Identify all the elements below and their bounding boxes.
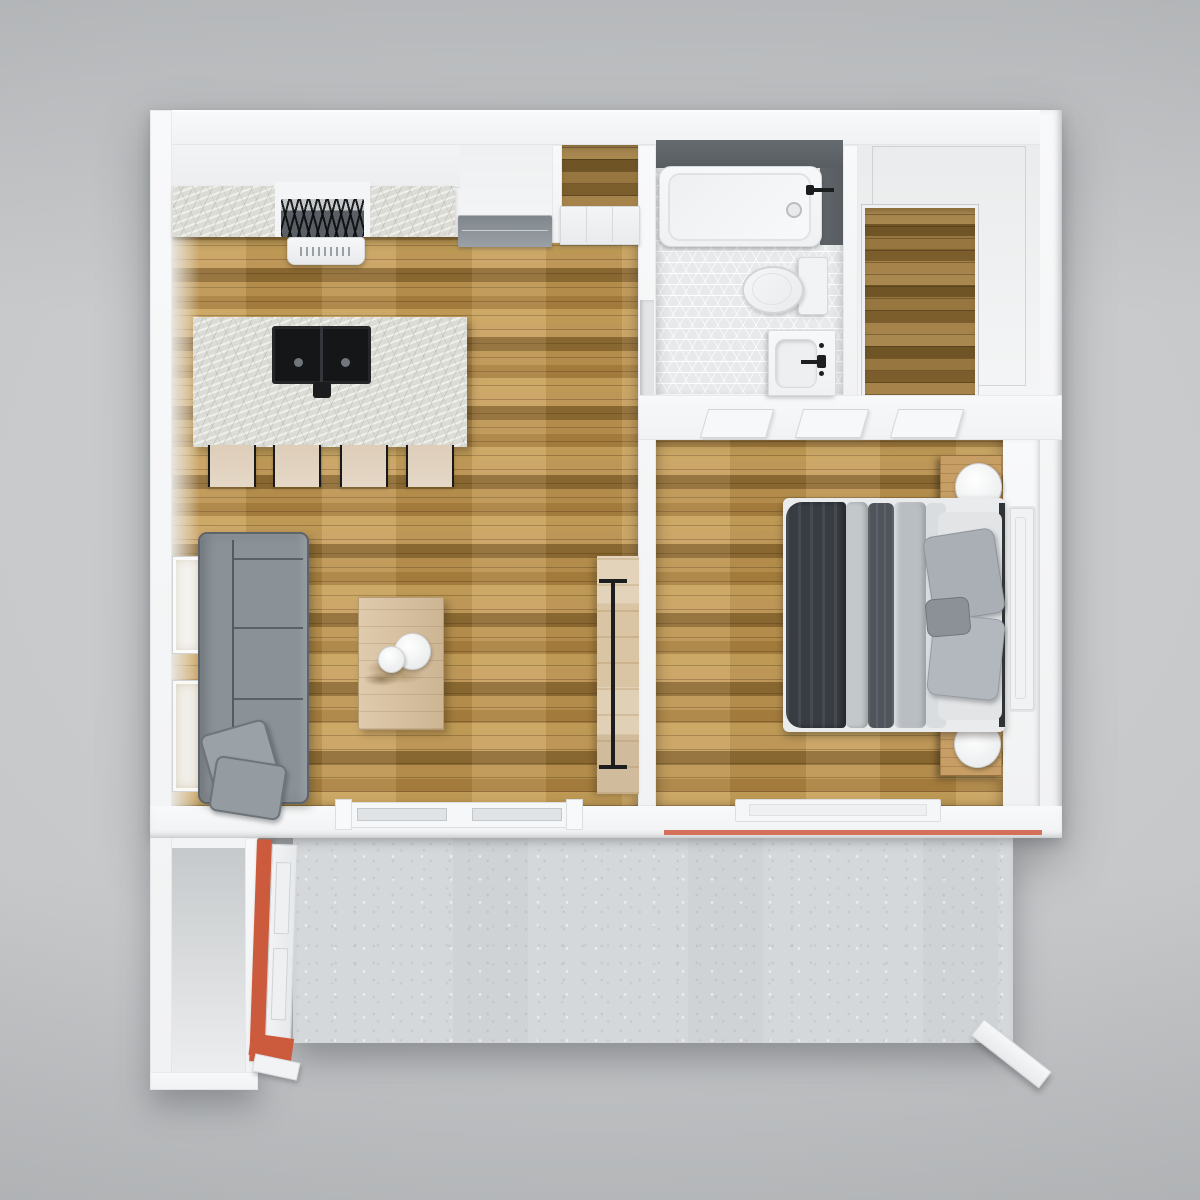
vanity-handle-dot (819, 371, 824, 376)
vanity-faucet-block (817, 355, 826, 368)
tub-faucet-knob (806, 185, 814, 195)
door-trim-open-leaf (700, 409, 774, 438)
pantry-cabinet (560, 206, 640, 245)
wall-left (150, 110, 172, 1090)
bed-accent-pillow (924, 596, 971, 638)
floor-plan-render (0, 0, 1200, 1200)
glass-pane (472, 808, 562, 821)
door-jamb-tab (566, 799, 583, 830)
barn-door-handle-bottom-bar (599, 765, 627, 769)
wall-kitchen-bath (638, 145, 656, 806)
bar-stool (340, 445, 388, 487)
barn-door-handle-top-bar (599, 579, 627, 583)
vanity-faucet-spout (801, 360, 817, 364)
front-door-panel (274, 862, 292, 934)
sofa-seam (234, 627, 303, 629)
wall-bath-closet (843, 145, 858, 410)
tub-surround-tile-top (656, 140, 843, 168)
pantry-cabinet-seam-2 (612, 207, 613, 242)
front-door-sill (252, 1053, 301, 1080)
patio-floor (293, 838, 1013, 1043)
wall-top (150, 110, 1062, 145)
bed-charcoal-fold (868, 503, 894, 728)
barn-door (597, 556, 639, 794)
fridge-handle-line (462, 230, 548, 231)
sofa-seam (234, 558, 303, 560)
hood-vent-grille (300, 247, 350, 256)
glass-pane (357, 808, 447, 821)
front-door-group (246, 839, 302, 1085)
bar-stool (406, 445, 454, 487)
closet-wood-floor (862, 205, 978, 398)
bar-stool (208, 445, 256, 487)
exterior-accent-stripe (664, 830, 1042, 835)
barn-door-handle (611, 581, 615, 769)
sofa-throw-pillow (208, 755, 288, 822)
island-sink-divider (320, 326, 323, 384)
sink-drain-right (341, 358, 350, 367)
door-jamb-tab (335, 799, 352, 830)
plant-bowl-small (378, 646, 405, 673)
toilet-seat-ring (752, 273, 792, 305)
door-trim-open-leaf (795, 409, 869, 438)
sink-drain-left (294, 358, 303, 367)
sink-faucet (313, 382, 331, 398)
bed-charcoal-throw (786, 502, 846, 728)
sofa-seam (234, 698, 303, 700)
vanity-handle-dot (819, 343, 824, 348)
bed-comforter-fold (894, 502, 926, 728)
bedroom-side-window-inner (1015, 517, 1026, 699)
refrigerator (458, 215, 552, 247)
range-cooktop (281, 199, 364, 237)
bedroom-rear-window-pane (749, 804, 927, 816)
tub-drain (786, 202, 802, 218)
bed-sheet-fold-light (846, 502, 868, 728)
wall-entry-bottom (150, 1072, 258, 1090)
bar-stool (273, 445, 321, 487)
pantry-cabinet-seam-1 (586, 207, 587, 242)
front-door-panel (271, 948, 289, 1020)
entry-closet-floor (172, 848, 245, 1072)
pantry-floor (562, 145, 638, 208)
wall-right (1040, 110, 1062, 838)
door-trim-open-leaf (890, 409, 964, 438)
tub-surround-tile-right (820, 168, 843, 245)
